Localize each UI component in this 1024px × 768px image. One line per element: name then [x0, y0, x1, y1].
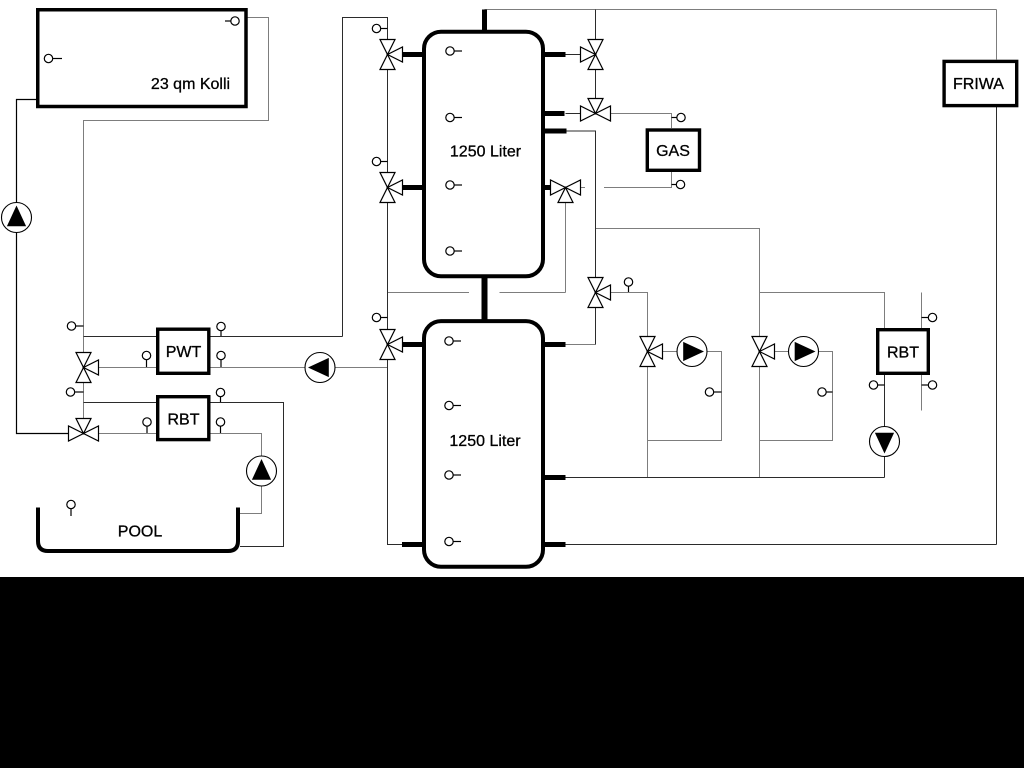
- svg-text:1250 Liter: 1250 Liter: [449, 433, 521, 450]
- svg-text:GAS: GAS: [656, 143, 690, 160]
- svg-text:23 qm Kolli: 23 qm Kolli: [151, 76, 230, 93]
- svg-text:PWT: PWT: [166, 344, 202, 361]
- svg-text:1250 Liter: 1250 Liter: [450, 144, 522, 161]
- svg-text:FRIWA: FRIWA: [953, 76, 1004, 93]
- svg-text:RBT: RBT: [887, 345, 919, 362]
- svg-text:POOL: POOL: [118, 524, 163, 541]
- svg-text:RBT: RBT: [168, 412, 200, 429]
